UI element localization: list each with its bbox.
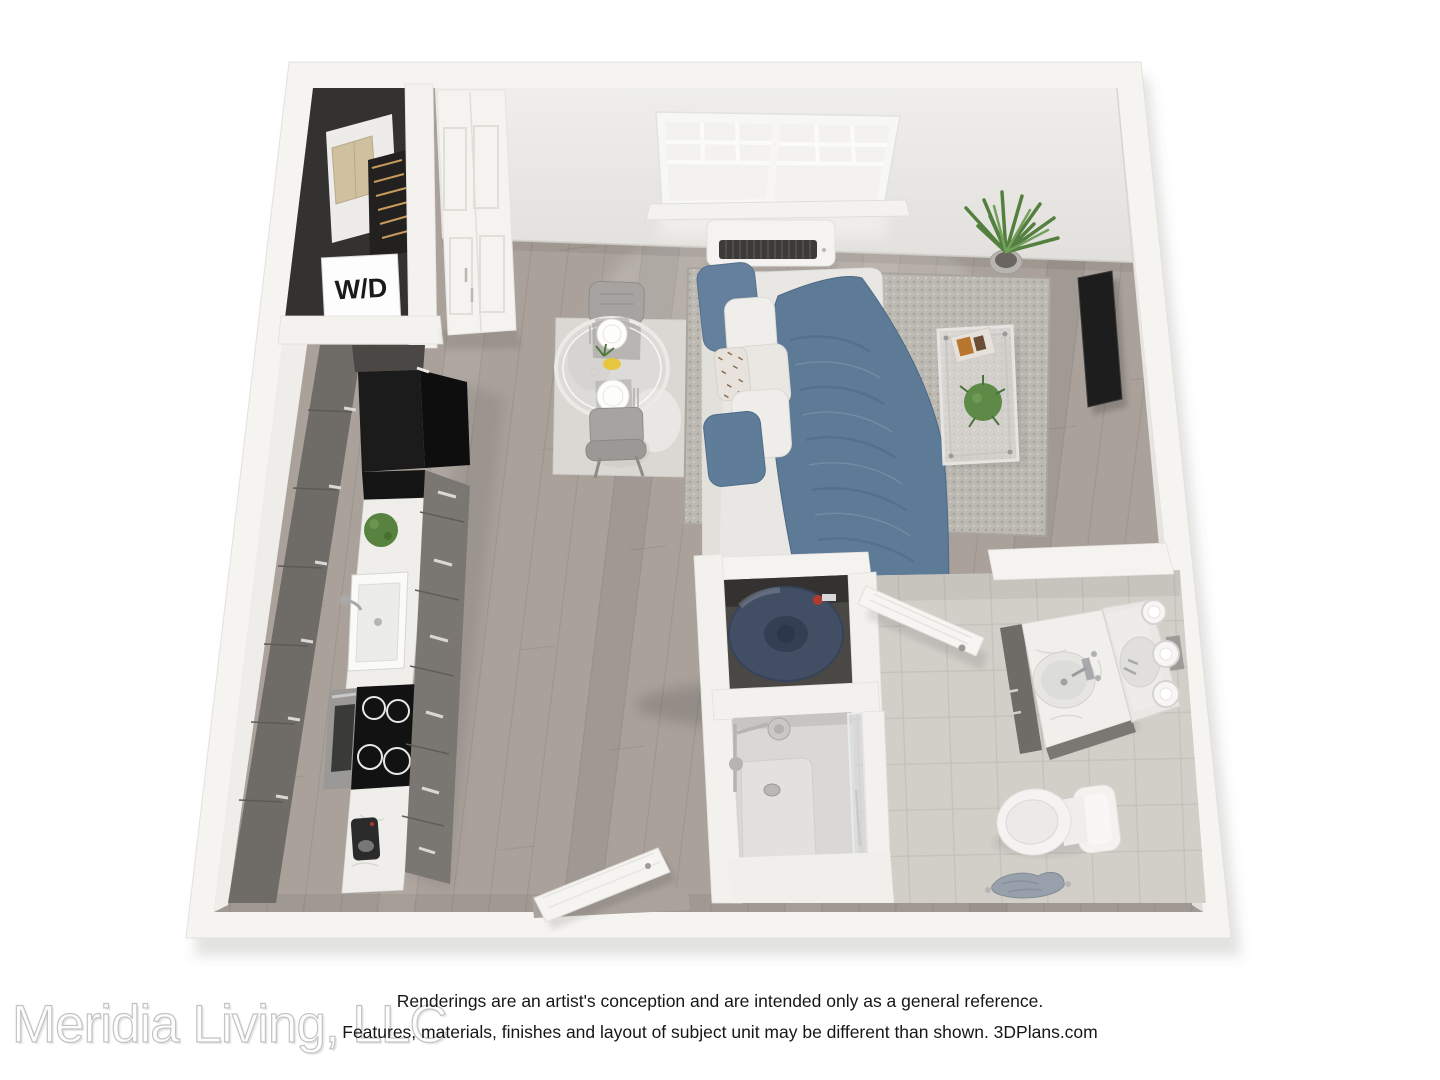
shower-floor-ledge — [741, 758, 816, 860]
range — [323, 684, 418, 790]
counter-plant-hl — [369, 519, 379, 529]
coffee-maker-body — [351, 817, 381, 861]
counter-plant-sh — [384, 532, 392, 540]
coffee-maker — [351, 817, 381, 861]
plate-top — [597, 319, 627, 349]
table-corner-1 — [944, 336, 949, 341]
shower-valve — [729, 757, 743, 771]
water-heater-cap — [777, 625, 795, 643]
floorplan-image: W/D — [0, 0, 1440, 1080]
table-corner-4 — [949, 454, 954, 459]
mat-hook-2 — [1065, 881, 1071, 887]
counter-black — [362, 470, 428, 500]
floorplan-svg: W/D — [0, 0, 1440, 1080]
cooktop — [351, 684, 418, 790]
coffee-table — [938, 326, 1026, 470]
fridge-front — [420, 370, 470, 468]
double-hung-window — [646, 112, 910, 238]
water-heater-valve — [813, 595, 823, 605]
oven-window — [331, 704, 355, 772]
fruit-bowl — [603, 358, 621, 370]
sconce-3-inner — [1160, 688, 1172, 700]
entry-door-handle — [645, 863, 651, 869]
table-corner-3 — [1008, 450, 1013, 455]
shower-head-center — [774, 724, 784, 734]
shower — [726, 711, 894, 903]
sink-drain — [374, 618, 382, 626]
ac-logo-dot — [822, 248, 826, 252]
disclaimer-line-1: Renderings are an artist's conception an… — [0, 986, 1440, 1017]
pillow-blue-bottom — [702, 410, 766, 488]
refrigerator — [358, 368, 470, 472]
table-plant-hl — [972, 393, 982, 403]
disclaimer-line-2: Features, materials, finishes and layout… — [0, 1017, 1440, 1048]
sconce-1-inner — [1148, 606, 1160, 618]
window-sill — [646, 200, 910, 220]
coffee-carafe — [358, 840, 374, 852]
cabinet-top-dark — [352, 345, 425, 372]
water-heater-pipe — [822, 594, 836, 601]
table-corner-2 — [1003, 332, 1008, 337]
wd-closet-bottom-wall — [278, 316, 443, 344]
coffee-maker-light — [370, 822, 374, 826]
faucet-handle-1 — [1091, 651, 1097, 657]
water-heater-closet — [712, 572, 882, 720]
bathroom — [694, 543, 1206, 903]
mat-hook-1 — [985, 887, 991, 893]
bathroom-door-handle — [959, 645, 966, 652]
shower-drain — [764, 784, 780, 796]
plant-soil — [995, 252, 1017, 268]
bathroom-top-wall-right — [988, 543, 1174, 580]
wd-closet-right-wall — [405, 84, 437, 348]
shower-front-deck — [726, 852, 894, 903]
counter-plant — [364, 513, 398, 547]
table-plant-foliage — [964, 383, 1002, 421]
wd-label: W/D — [334, 273, 388, 306]
mirror-reflection-sink — [1120, 637, 1160, 687]
fridge-top — [358, 370, 425, 472]
sconce-2-inner — [1160, 648, 1172, 660]
plate-bottom — [597, 380, 629, 412]
faucet-handle-2 — [1095, 675, 1101, 681]
washer-dryer-unit: W/D — [321, 254, 400, 320]
vanity-sink-drain — [1061, 679, 1068, 686]
disclaimer: Renderings are an artist's conception an… — [0, 986, 1440, 1048]
